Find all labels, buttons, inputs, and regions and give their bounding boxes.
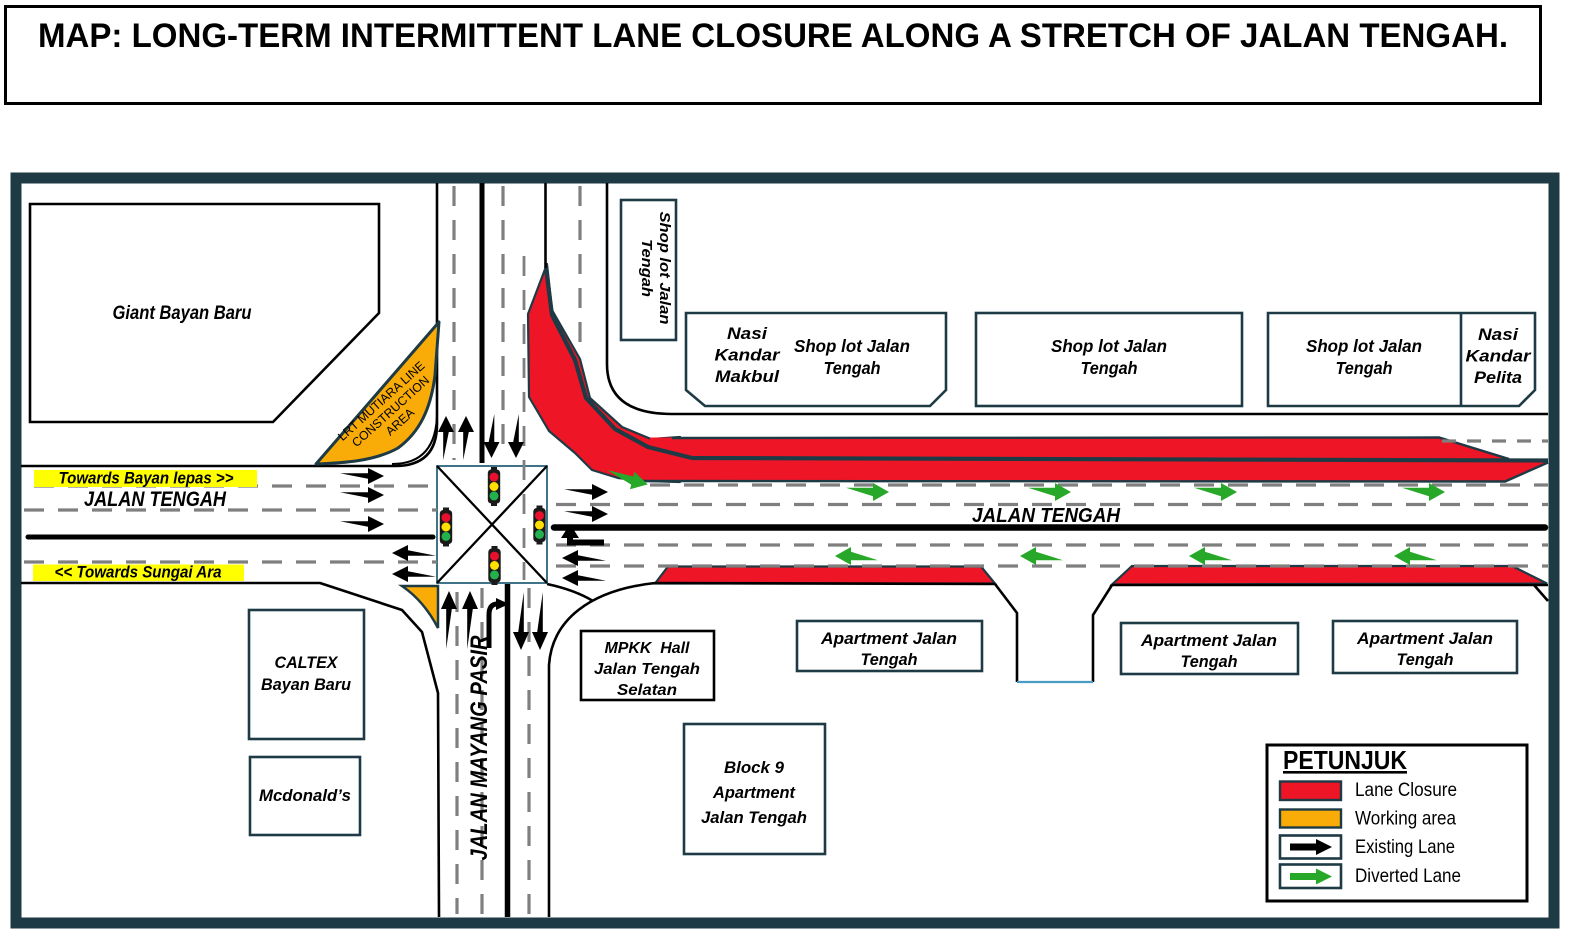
svg-text:Lane Closure: Lane Closure [1355,779,1457,801]
svg-text:Tengah: Tengah [638,239,655,297]
svg-text:Working area: Working area [1355,808,1456,830]
svg-text:Diverted Lane: Diverted Lane [1355,865,1461,887]
svg-text:JALAN TENGAH: JALAN TENGAH [972,504,1121,527]
svg-text:Giant Bayan Baru: Giant Bayan Baru [113,302,252,324]
svg-text:JALAN TENGAH: JALAN TENGAH [84,487,226,511]
svg-text:PETUNJUK: PETUNJUK [1283,745,1407,775]
svg-text:Shop lot Jalan: Shop lot Jalan [656,212,673,325]
svg-text:Mcdonald’s: Mcdonald’s [259,787,351,805]
svg-text:Towards Bayan lepas >>: Towards Bayan lepas >> [59,469,234,488]
svg-text:<< Towards Sungai Ara: << Towards Sungai Ara [55,563,222,582]
svg-text:MAP: LONG-TERM INTERMITTENT LA: MAP: LONG-TERM INTERMITTENT LANE CLOSURE… [38,17,1508,55]
svg-text:Existing Lane: Existing Lane [1355,836,1455,858]
svg-text:JALAN MAYANG PASIR: JALAN MAYANG PASIR [466,635,493,861]
